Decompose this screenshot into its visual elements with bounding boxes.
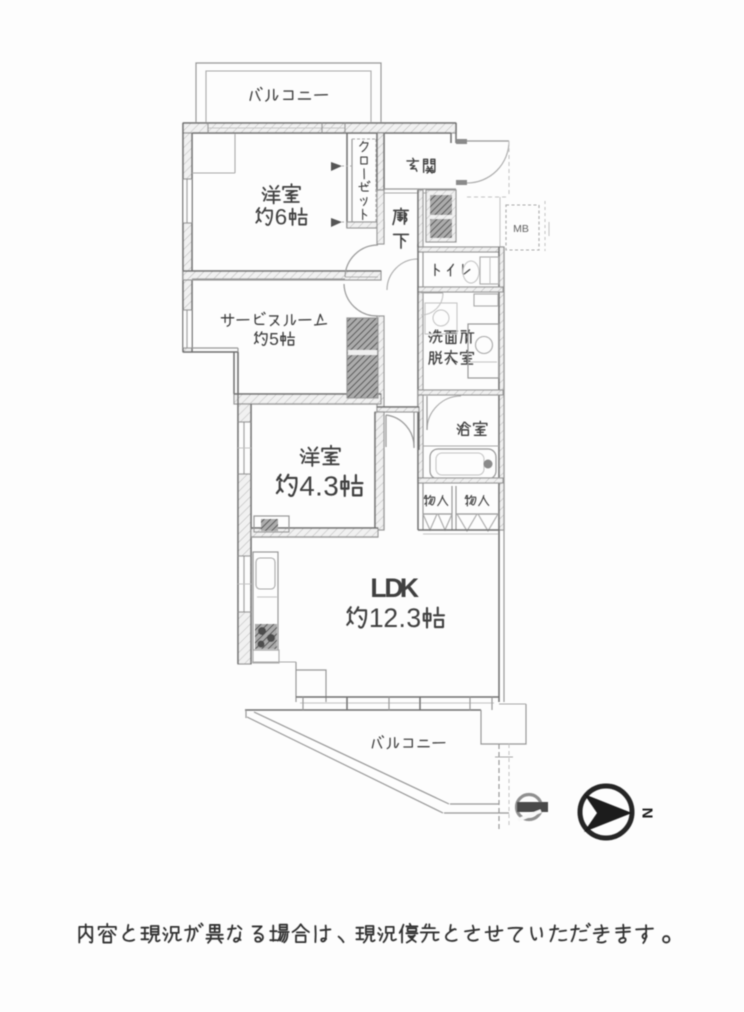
svg-text:K: K	[400, 573, 419, 603]
svg-text:MB: MB	[513, 223, 529, 235]
svg-text:.: .	[315, 470, 323, 501]
svg-text:N: N	[639, 808, 656, 819]
svg-text:6: 6	[275, 205, 287, 230]
svg-text:2: 2	[383, 603, 398, 633]
svg-text:5: 5	[269, 329, 279, 349]
svg-text:4: 4	[299, 470, 314, 501]
svg-text:3: 3	[323, 470, 338, 501]
svg-text:1: 1	[369, 603, 384, 633]
svg-text:.: .	[399, 603, 406, 633]
svg-text:3: 3	[406, 603, 421, 633]
